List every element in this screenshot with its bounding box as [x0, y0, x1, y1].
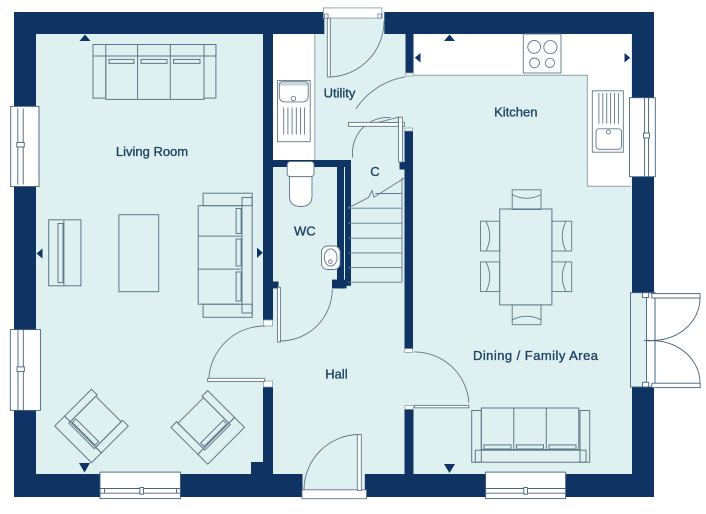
svg-text:Dining / Family Area: Dining / Family Area: [473, 348, 599, 363]
svg-text:Living Room: Living Room: [116, 144, 188, 159]
svg-text:WC: WC: [294, 224, 316, 239]
svg-text:C: C: [370, 164, 379, 179]
svg-text:Hall: Hall: [325, 366, 348, 381]
svg-text:Utility: Utility: [324, 86, 356, 101]
svg-text:Kitchen: Kitchen: [494, 105, 537, 120]
